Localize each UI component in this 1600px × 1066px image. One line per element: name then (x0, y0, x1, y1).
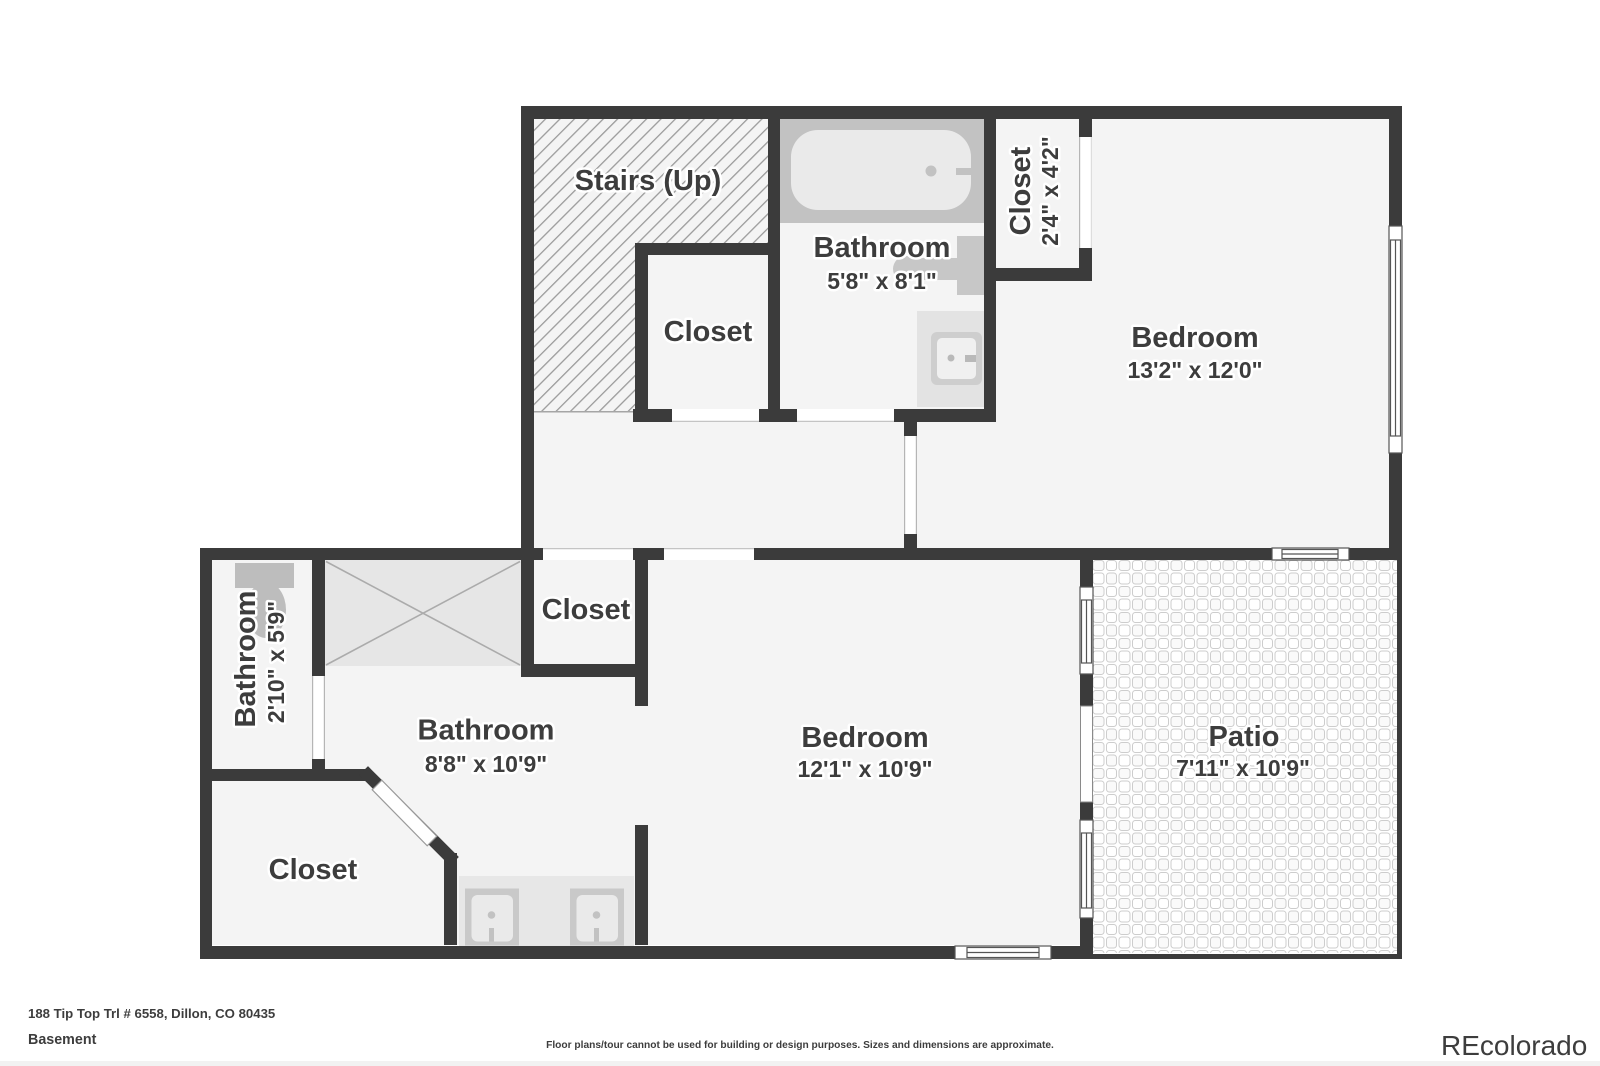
svg-text:8'8" x 10'9": 8'8" x 10'9" (425, 751, 547, 777)
svg-text:Closet: Closet (269, 854, 358, 886)
svg-text:13'2" x 12'0": 13'2" x 12'0" (1127, 357, 1262, 383)
svg-text:7'11" x 10'9": 7'11" x 10'9" (1176, 755, 1310, 781)
svg-text:188 Tip Top Trl # 6558, Dillon: 188 Tip Top Trl # 6558, Dillon, CO 80435 (28, 1006, 275, 1021)
svg-text:Stairs (Up): Stairs (Up) (575, 165, 722, 197)
svg-text:Patio: Patio (1209, 721, 1280, 753)
svg-text:Bedroom: Bedroom (1131, 322, 1258, 354)
svg-text:REcolorado: REcolorado (1441, 1030, 1587, 1061)
svg-text:Closet: Closet (664, 316, 753, 348)
svg-text:Bathroom: Bathroom (230, 591, 262, 728)
svg-text:5'8" x 8'1": 5'8" x 8'1" (827, 268, 937, 294)
svg-text:12'1" x 10'9": 12'1" x 10'9" (797, 756, 932, 782)
svg-text:Closet: Closet (1005, 146, 1037, 235)
svg-text:Bathroom: Bathroom (418, 715, 555, 747)
svg-text:Closet: Closet (542, 594, 631, 626)
svg-text:Basement: Basement (28, 1032, 97, 1048)
svg-text:Bathroom: Bathroom (814, 232, 951, 264)
svg-text:2'4" x 4'2": 2'4" x 4'2" (1037, 136, 1063, 246)
svg-text:Floor plans/tour cannot be use: Floor plans/tour cannot be used for buil… (546, 1040, 1054, 1051)
svg-text:2'10" x 5'9": 2'10" x 5'9" (263, 601, 289, 723)
svg-text:Bedroom: Bedroom (801, 722, 928, 754)
